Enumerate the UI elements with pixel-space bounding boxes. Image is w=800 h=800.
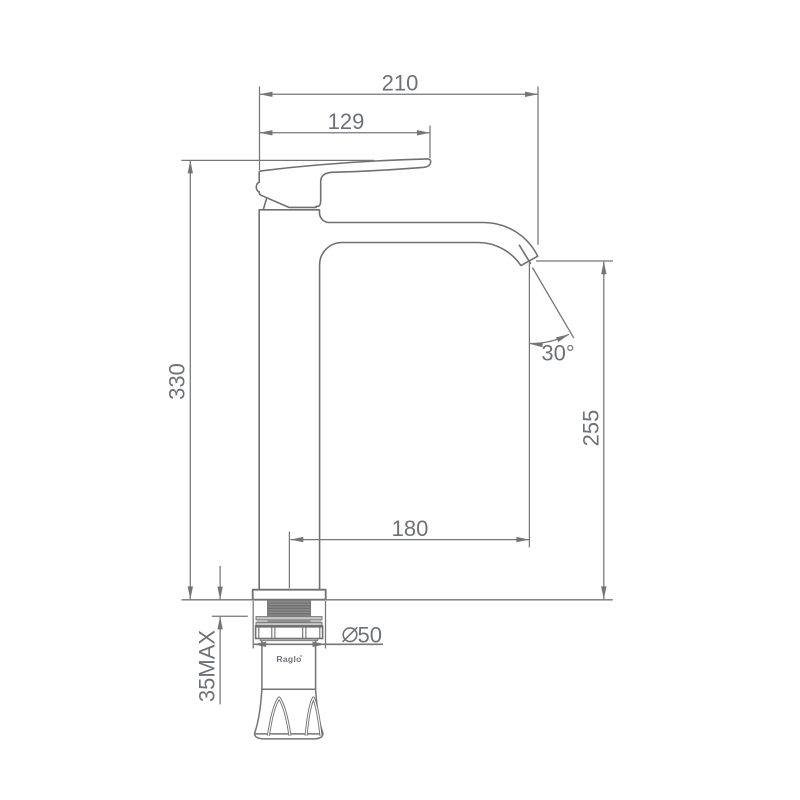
svg-text:35MAX: 35MAX xyxy=(195,630,220,702)
svg-text:330: 330 xyxy=(165,363,190,400)
svg-text:255: 255 xyxy=(579,410,604,447)
svg-text:210: 210 xyxy=(382,71,419,96)
svg-text:30°: 30° xyxy=(541,341,574,366)
svg-text:180: 180 xyxy=(392,516,429,541)
svg-text:50: 50 xyxy=(358,623,382,648)
svg-text:Raglo: Raglo xyxy=(276,654,301,664)
svg-text:129: 129 xyxy=(328,109,365,134)
